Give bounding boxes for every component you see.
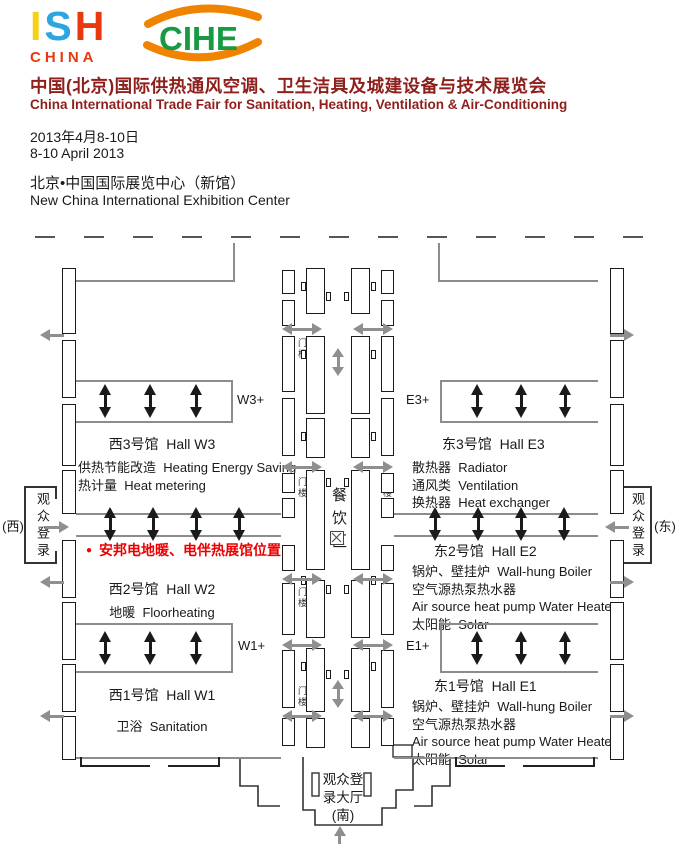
booth <box>282 498 295 518</box>
wall-line <box>440 623 598 625</box>
hall-e2-title: 东2号馆 Hall E2 <box>412 541 592 561</box>
dining-area-label: 餐饮区 <box>328 487 349 556</box>
booth <box>610 268 624 334</box>
door-tab <box>371 662 376 671</box>
door-tab <box>301 432 306 441</box>
booth <box>381 545 394 571</box>
double-arrow-horizontal-icon <box>282 573 322 585</box>
booth <box>351 470 370 570</box>
arrow-left-icon <box>605 521 629 533</box>
booth <box>306 718 325 748</box>
booth <box>282 270 295 294</box>
east-direction-label: (东) <box>652 516 678 535</box>
west-entry-box-stub <box>55 486 57 499</box>
booth <box>610 664 624 712</box>
arrow-up-icon <box>333 826 346 844</box>
booth <box>381 336 394 392</box>
wall-line <box>231 380 233 423</box>
double-arrow-horizontal-icon <box>282 639 322 651</box>
door-tab <box>301 350 306 359</box>
wall-line <box>233 243 235 282</box>
arrow-right-icon <box>610 329 634 341</box>
booth <box>351 580 370 638</box>
south-entry-label: 观众登 录大厅 (南) <box>300 771 386 825</box>
wall-line <box>76 421 233 423</box>
door-tab <box>371 350 376 359</box>
west-direction-label: (西) <box>1 516 25 535</box>
south-roof-box <box>393 745 412 757</box>
hall-w1-title: 西1号馆 Hall W1 <box>78 685 246 705</box>
arrow-left-icon <box>40 710 64 722</box>
hall-e1-line: 锅炉、壁挂炉 Wall-hung Boiler <box>412 698 592 716</box>
double-arrow-vertical-icon <box>190 631 202 665</box>
booth <box>351 648 370 712</box>
south-entry-line: (南) <box>300 807 386 825</box>
double-arrow-vertical-icon <box>559 384 571 418</box>
wall-line <box>438 280 598 282</box>
booth <box>306 336 325 414</box>
boundary-line <box>593 757 595 767</box>
booth <box>62 470 76 514</box>
hall-w1-badge: W1+ <box>238 638 265 653</box>
west-entry-box-stub <box>55 551 57 564</box>
door-tab <box>326 585 331 594</box>
hall-w3: 西3号馆 Hall W3 供热节能改造 Heating Energy Savin… <box>78 434 246 494</box>
double-arrow-vertical-icon <box>144 384 156 418</box>
double-arrow-vertical-icon <box>559 631 571 665</box>
wall-line <box>438 243 440 282</box>
booth <box>381 498 394 518</box>
booth <box>610 602 624 660</box>
door-tab <box>326 292 331 301</box>
wall-line <box>76 380 233 382</box>
boundary-line <box>455 757 457 767</box>
booth <box>381 270 394 294</box>
hall-e2: 东2号馆 Hall E2 锅炉、壁挂炉 Wall-hung Boiler 空气源… <box>412 541 592 633</box>
double-arrow-horizontal-icon <box>353 710 393 722</box>
booth <box>351 268 370 314</box>
door-tab <box>371 432 376 441</box>
booth <box>282 650 295 708</box>
wall-line <box>394 757 598 759</box>
booth <box>282 718 295 746</box>
booth <box>62 664 76 712</box>
hall-e1-line: 空气源热泵热水器 <box>412 716 592 734</box>
double-arrow-vertical-icon <box>147 507 159 541</box>
double-arrow-vertical-icon <box>190 384 202 418</box>
double-arrow-vertical-icon <box>332 348 344 376</box>
hall-w2-title: 西2号馆 Hall W2 <box>78 579 246 599</box>
annotation-bullet-icon: ● <box>86 545 92 556</box>
hall-e1-badge: E1+ <box>406 638 430 653</box>
hall-e3-title: 东3号馆 Hall E3 <box>412 434 587 454</box>
arrow-right-icon <box>45 521 69 533</box>
door-tab <box>301 662 306 671</box>
arrow-right-icon <box>610 576 634 588</box>
hall-w2-line: 地暖 Floorheating <box>78 604 246 622</box>
hall-e2-line: 锅炉、壁挂炉 Wall-hung Boiler <box>412 563 592 581</box>
booth <box>306 418 325 458</box>
double-arrow-horizontal-icon <box>282 323 322 335</box>
booth <box>610 404 624 466</box>
double-arrow-vertical-icon <box>332 680 344 708</box>
hall-e3-badge: E3+ <box>406 392 430 407</box>
wall-line <box>440 623 442 673</box>
boundary-line <box>168 765 218 767</box>
hall-w1-line: 卫浴 Sanitation <box>78 718 246 736</box>
wall-line <box>440 671 598 673</box>
floor-plan: 西3号馆 Hall W3 供热节能改造 Heating Energy Savin… <box>0 0 686 844</box>
east-entry-label: 观众登录 <box>628 492 647 560</box>
booth <box>381 583 394 635</box>
booth <box>62 340 76 398</box>
double-arrow-vertical-icon <box>515 507 527 541</box>
south-entry-line: 观众登 <box>300 771 386 789</box>
wall-line <box>440 380 442 423</box>
double-arrow-horizontal-icon <box>282 461 322 473</box>
booth <box>381 398 394 456</box>
door-tab <box>344 292 349 301</box>
double-arrow-vertical-icon <box>515 631 527 665</box>
booth <box>351 718 370 748</box>
site-boundary-dashed-line <box>35 236 651 238</box>
double-arrow-vertical-icon <box>233 507 245 541</box>
booth <box>282 545 295 571</box>
double-arrow-vertical-icon <box>429 507 441 541</box>
booth <box>306 470 325 570</box>
boundary-line <box>80 765 150 767</box>
double-arrow-vertical-icon <box>99 384 111 418</box>
booth <box>306 268 325 314</box>
door-tab <box>344 670 349 679</box>
boundary-line <box>80 757 82 767</box>
double-arrow-horizontal-icon <box>353 639 393 651</box>
double-arrow-horizontal-icon <box>353 573 393 585</box>
wall-line <box>440 380 598 382</box>
booth <box>610 470 624 514</box>
door-tab <box>344 585 349 594</box>
booth <box>351 336 370 414</box>
double-arrow-vertical-icon <box>558 507 570 541</box>
booth <box>62 404 76 466</box>
booth <box>62 268 76 334</box>
boundary-line <box>455 765 505 767</box>
booth <box>610 716 624 760</box>
double-arrow-vertical-icon <box>471 384 483 418</box>
crossed-box-icon <box>330 531 344 545</box>
hall-w3-line: 供热节能改造 Heating Energy Saving <box>78 459 246 477</box>
hall-e1-title: 东1号馆 Hall E1 <box>412 676 592 696</box>
arrow-right-icon <box>610 710 634 722</box>
flyer-page: I S H CHINA CIHE 中国(北京)国际供热通风空调、卫生洁具及城建设… <box>0 0 686 844</box>
boundary-line <box>523 765 593 767</box>
booth <box>381 718 394 746</box>
booth <box>381 650 394 708</box>
booth <box>62 716 76 760</box>
hall-w1: 西1号馆 Hall W1 卫浴 Sanitation <box>78 685 246 736</box>
double-arrow-vertical-icon <box>104 507 116 541</box>
double-arrow-vertical-icon <box>144 631 156 665</box>
booth <box>306 648 325 712</box>
door-tab <box>344 478 349 487</box>
booth <box>381 473 394 493</box>
booth <box>282 473 295 493</box>
booth <box>282 336 295 392</box>
hall-e2-line: Air source heat pump Water Heater <box>412 598 592 616</box>
booth <box>610 540 624 598</box>
annotation-text: 安邦电地暖、电伴热展馆位置 <box>99 540 281 560</box>
booth <box>62 540 76 598</box>
booth <box>62 602 76 660</box>
booth <box>610 340 624 398</box>
wall-line <box>76 623 233 625</box>
booth <box>306 580 325 638</box>
hall-w3-title: 西3号馆 Hall W3 <box>78 434 246 454</box>
double-arrow-vertical-icon <box>472 507 484 541</box>
double-arrow-horizontal-icon <box>353 461 393 473</box>
arrow-left-icon <box>40 329 64 341</box>
hall-w3-line: 热计量 Heat metering <box>78 477 246 495</box>
south-entry-line: 录大厅 <box>300 789 386 807</box>
booth <box>351 418 370 458</box>
wall-line <box>76 757 281 759</box>
wall-line <box>76 671 233 673</box>
exhibitor-annotation: ● 安邦电地暖、电伴热展馆位置 <box>86 540 281 560</box>
double-arrow-vertical-icon <box>99 631 111 665</box>
door-tab <box>326 478 331 487</box>
wall-line <box>440 421 598 423</box>
double-arrow-horizontal-icon <box>353 323 393 335</box>
double-arrow-horizontal-icon <box>282 710 322 722</box>
hall-e3: 东3号馆 Hall E3 散热器 Radiator 通风类 Ventilatio… <box>412 434 587 512</box>
double-arrow-vertical-icon <box>515 384 527 418</box>
hall-e3-line: 通风类 Ventilation <box>412 477 587 495</box>
hall-e2-line: 空气源热泵热水器 <box>412 581 592 599</box>
hall-w3-badge: W3+ <box>237 392 264 407</box>
hall-w2: 西2号馆 Hall W2 地暖 Floorheating <box>78 579 246 622</box>
door-tab <box>326 670 331 679</box>
boundary-line <box>218 757 220 767</box>
arrow-left-icon <box>40 576 64 588</box>
hall-e3-line: 散热器 Radiator <box>412 459 587 477</box>
wall-line <box>231 623 233 673</box>
booth <box>282 583 295 635</box>
door-tab <box>301 282 306 291</box>
wall-line <box>76 280 234 282</box>
double-arrow-vertical-icon <box>471 631 483 665</box>
door-tab <box>371 282 376 291</box>
double-arrow-vertical-icon <box>190 507 202 541</box>
booth <box>282 398 295 456</box>
